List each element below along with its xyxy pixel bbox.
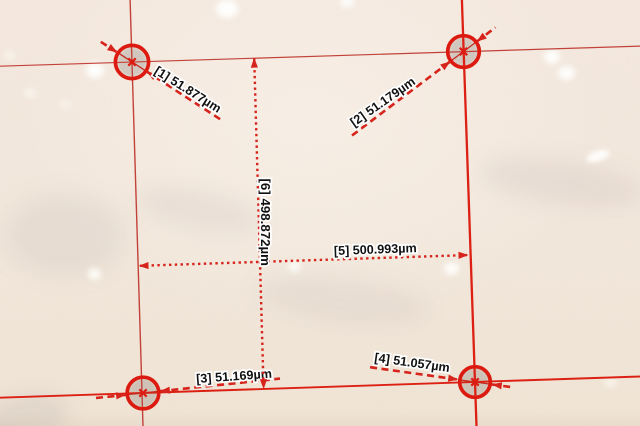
svg-text:[4] 51.057µm: [4] 51.057µm <box>374 351 451 375</box>
svg-text:[5] 500.993µm: [5] 500.993µm <box>334 241 417 258</box>
svg-text:[2] 51.179µm: [2] 51.179µm <box>348 74 418 129</box>
svg-text:[3] 51.169µm: [3] 51.169µm <box>196 367 273 386</box>
svg-text:[6] 498.872µm: [6] 498.872µm <box>258 179 273 267</box>
svg-text:[1] 51.877µm: [1] 51.877µm <box>152 64 224 116</box>
